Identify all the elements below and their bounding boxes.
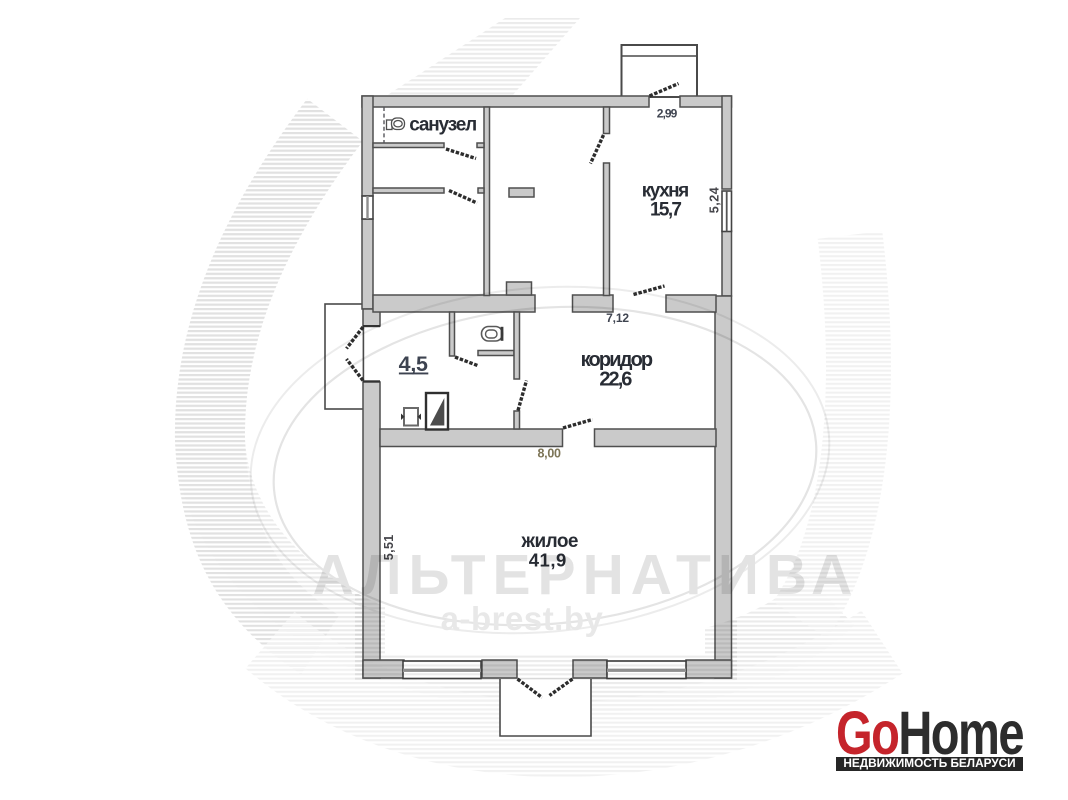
svg-text:АЛЬТЕРНАТИВА: АЛЬТЕРНАТИВА	[313, 543, 860, 607]
svg-text:a-brest.by: a-brest.by	[441, 600, 604, 637]
